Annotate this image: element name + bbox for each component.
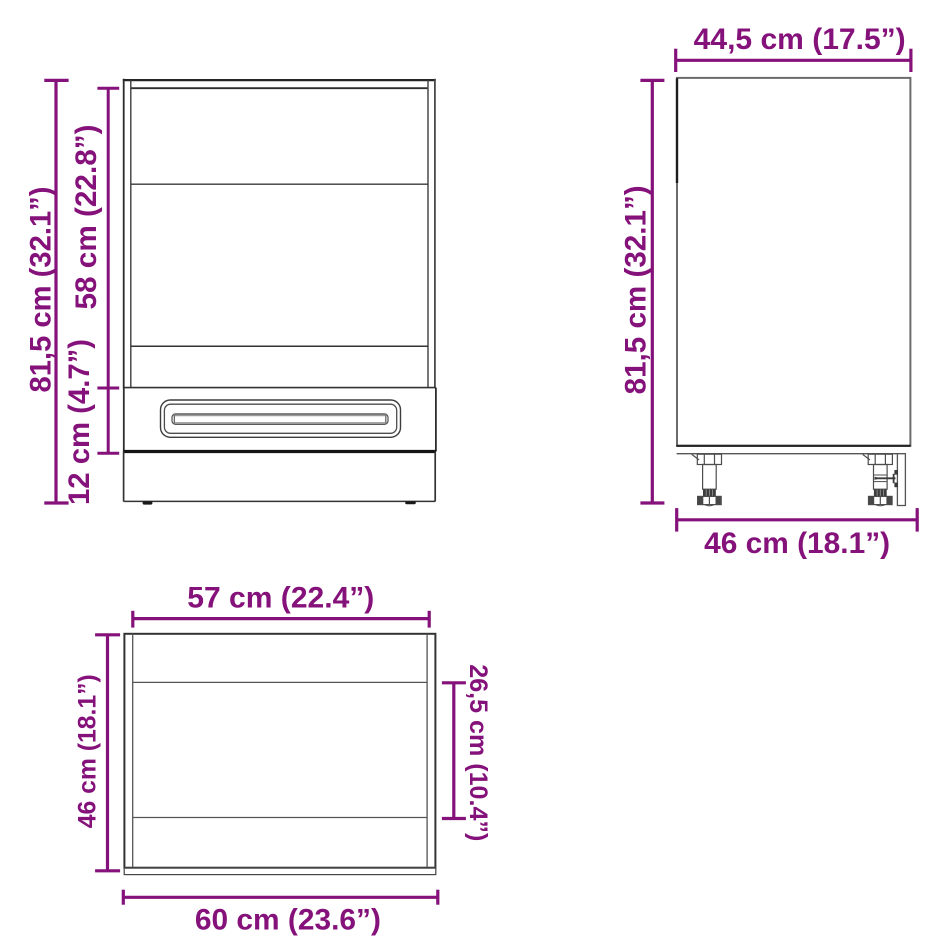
svg-text:58 cm (22.8”): 58 cm (22.8”)	[70, 124, 103, 309]
svg-text:12 cm (4.7”): 12 cm (4.7”)	[63, 339, 96, 505]
svg-text:60 cm (23.6”): 60 cm (23.6”)	[195, 904, 381, 937]
svg-text:44,5 cm (17.5”): 44,5 cm (17.5”)	[694, 23, 906, 56]
svg-text:57 cm (22.4”): 57 cm (22.4”)	[187, 581, 374, 614]
svg-text:46 cm (18.1”): 46 cm (18.1”)	[74, 674, 102, 828]
svg-text:81,5 cm (32.1”): 81,5 cm (32.1”)	[24, 187, 57, 393]
svg-text:46 cm (18.1”): 46 cm (18.1”)	[704, 527, 890, 560]
svg-text:81,5 cm (32.1”): 81,5 cm (32.1”)	[620, 185, 653, 394]
svg-text:26,5 cm (10.4”): 26,5 cm (10.4”)	[464, 664, 492, 841]
